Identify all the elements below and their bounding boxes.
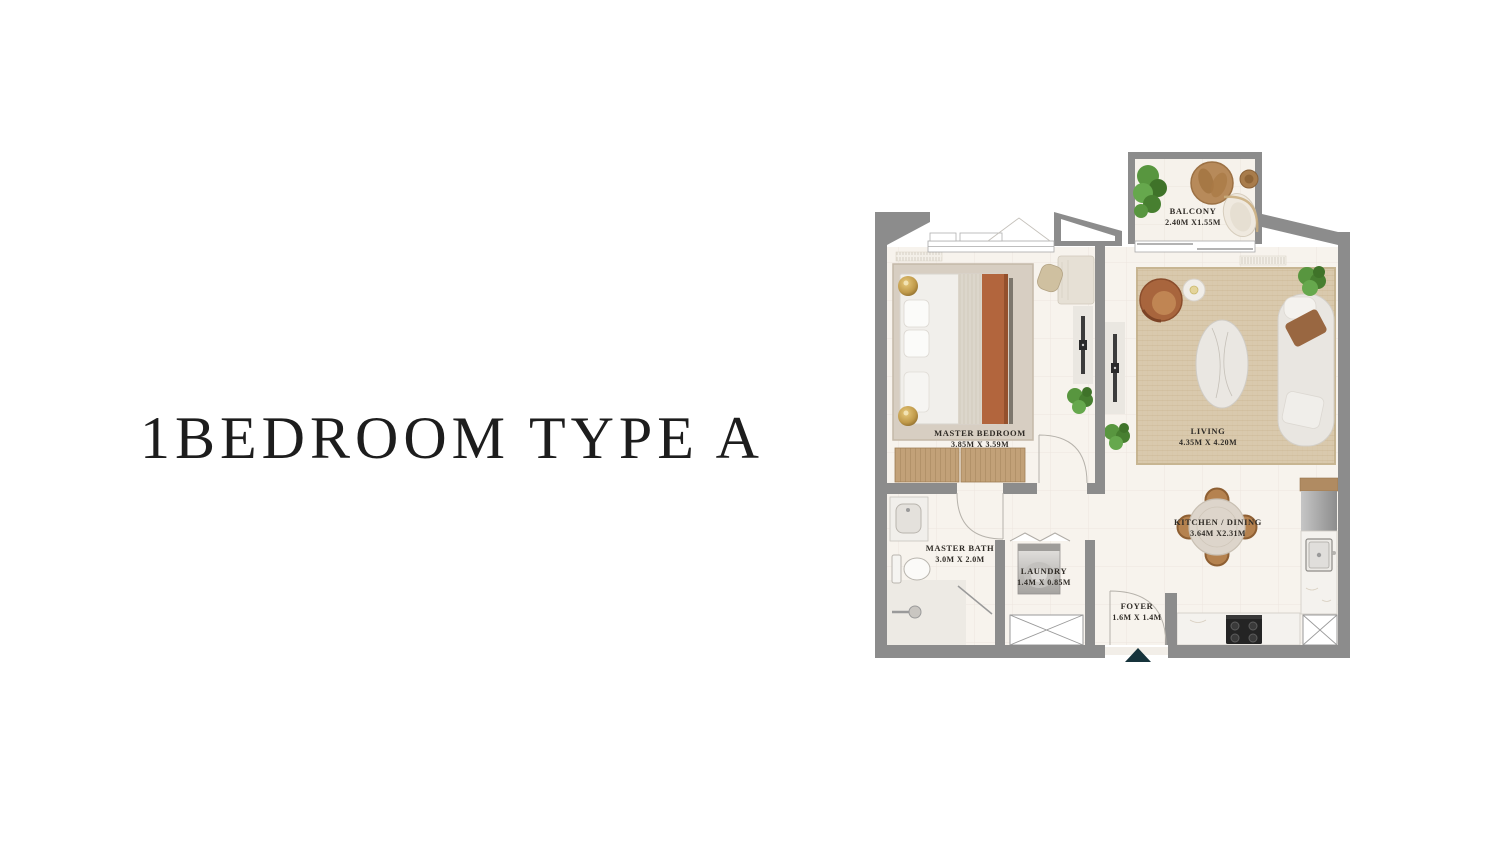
side-table bbox=[1183, 279, 1205, 301]
bed-bench bbox=[1009, 278, 1013, 424]
room-label-master-bath: MASTER BATH 3.0M X 2.0M bbox=[926, 542, 995, 566]
sink bbox=[1306, 539, 1336, 571]
vanity-sink bbox=[890, 497, 928, 541]
armchair bbox=[1140, 279, 1182, 321]
bedroom-window-vent bbox=[896, 252, 942, 261]
nightstand-lamp bbox=[898, 406, 918, 426]
pillow bbox=[904, 300, 929, 327]
pillow bbox=[904, 330, 929, 357]
bedroom-window bbox=[928, 218, 1054, 252]
bed-throw-rust bbox=[982, 274, 1004, 424]
room-label-laundry: LAUNDRY 1.4M X 0.85M bbox=[1017, 565, 1071, 589]
bed-throw-beige bbox=[958, 274, 982, 424]
desk bbox=[1058, 256, 1094, 304]
coffee-table bbox=[1196, 320, 1248, 408]
floor-plan-graphic bbox=[860, 148, 1370, 668]
stove bbox=[1226, 615, 1262, 644]
room-label-foyer: FOYER 1.6M X 1.4M bbox=[1112, 600, 1161, 624]
plan-title: 1BEDROOM TYPE A bbox=[140, 408, 764, 468]
shaft-box bbox=[1303, 615, 1337, 645]
room-label-balcony: BALCONY 2.40M X1.55M bbox=[1165, 205, 1221, 229]
room-label-kitchen-dining: KITCHEN / DINING 3.64M X2.31M bbox=[1174, 516, 1262, 540]
room-label-living: LIVING 4.35M X 4.20M bbox=[1179, 425, 1237, 449]
refrigerator bbox=[1301, 491, 1337, 531]
floor-plan: BALCONY 2.40M X1.55M MASTER BEDROOM 3.85… bbox=[860, 148, 1370, 668]
room-label-master-bedroom: MASTER BEDROOM 3.85M X 3.59M bbox=[934, 427, 1026, 451]
wall-bedroom-living bbox=[1095, 246, 1105, 494]
tv-console bbox=[1105, 322, 1125, 414]
page: 1BEDROOM TYPE A bbox=[0, 0, 1500, 843]
nightstand-lamp bbox=[898, 276, 918, 296]
bed bbox=[900, 274, 1013, 424]
balcony-sliding-door bbox=[1135, 241, 1255, 252]
tv-console bbox=[1073, 306, 1093, 384]
balcony-stool bbox=[1240, 170, 1258, 188]
living-window-vent bbox=[1240, 256, 1286, 265]
shaft-box bbox=[1010, 615, 1083, 645]
sofa bbox=[1278, 294, 1334, 446]
